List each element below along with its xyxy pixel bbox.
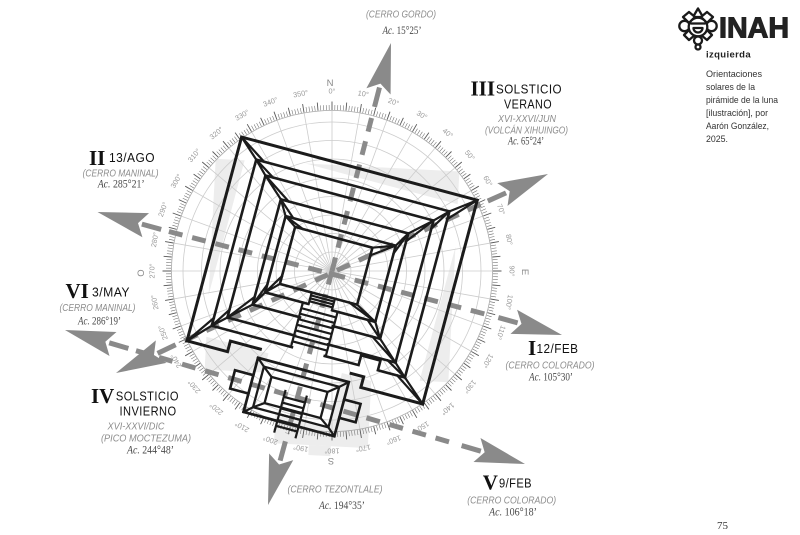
svg-text:12/FEB: 12/FEB [537,341,579,356]
svg-text:(CERRO COLORADO): (CERRO COLORADO) [467,496,556,507]
svg-text:N: N [327,78,334,89]
svg-text:75: 75 [717,520,729,532]
svg-text:I: I [528,336,536,360]
svg-text:INVIERNO: INVIERNO [120,404,177,419]
svg-text:Ac. 286°19’: Ac. 286°19’ [77,316,121,328]
svg-text:II: II [89,146,105,170]
svg-text:90°: 90° [508,265,517,276]
svg-text:9/FEB: 9/FEB [499,476,532,491]
svg-text:Ac. 106°18’: Ac. 106°18’ [488,507,537,519]
svg-text:Ac. 65°24’: Ac. 65°24’ [507,136,544,148]
svg-text:izquierda: izquierda [706,50,751,61]
svg-text:(CERRO MANINAL): (CERRO MANINAL) [60,303,136,314]
svg-text:13/AGO: 13/AGO [109,150,155,165]
svg-text:VERANO: VERANO [504,97,552,112]
svg-text:Ac. 105°30’: Ac. 105°30’ [528,372,573,384]
svg-text:SOLSTICIO: SOLSTICIO [496,82,562,97]
svg-text:VI: VI [66,279,89,303]
svg-text:INAH: INAH [719,13,789,45]
svg-text:Ac. 285°21’: Ac. 285°21’ [97,179,145,191]
svg-text:3/MAY: 3/MAY [92,285,130,300]
svg-text:Ac. 194°35’: Ac. 194°35’ [318,500,365,512]
svg-text:(PICO MOCTEZUMA): (PICO MOCTEZUMA) [101,434,191,445]
svg-text:(CERRO GORDO): (CERRO GORDO) [366,10,436,21]
svg-text:XVI-XXVI/JUN: XVI-XXVI/JUN [497,114,557,125]
svg-text:(CERRO TEZONTLALE): (CERRO TEZONTLALE) [288,485,383,496]
svg-text:IV: IV [91,384,114,408]
svg-text:180°: 180° [324,447,339,456]
svg-text:Ac. 244°48’: Ac. 244°48’ [126,445,174,457]
svg-text:270°: 270° [148,263,157,278]
svg-text:(CERRO COLORADO): (CERRO COLORADO) [506,361,595,372]
svg-text:pirámide de la luna: pirámide de la luna [706,95,779,105]
svg-text:80°: 80° [504,233,515,246]
svg-text:Orientaciones: Orientaciones [706,69,762,79]
svg-text:[ilustración], por: [ilustración], por [706,108,768,118]
svg-text:Ac. 15°25’: Ac. 15°25’ [382,25,422,37]
svg-text:E: E [519,269,530,275]
svg-text:V: V [483,471,498,495]
svg-text:XVI-XXVI/DIC: XVI-XXVI/DIC [107,422,166,433]
svg-text:10°: 10° [357,88,370,99]
svg-text:2025.: 2025. [706,134,728,144]
svg-text:O: O [136,269,147,276]
svg-text:S: S [328,455,334,466]
svg-text:solares de la: solares de la [706,82,756,92]
svg-text:SOLSTICIO: SOLSTICIO [116,389,179,404]
svg-text:III: III [471,77,496,101]
svg-text:Aarón González,: Aarón González, [706,121,769,131]
